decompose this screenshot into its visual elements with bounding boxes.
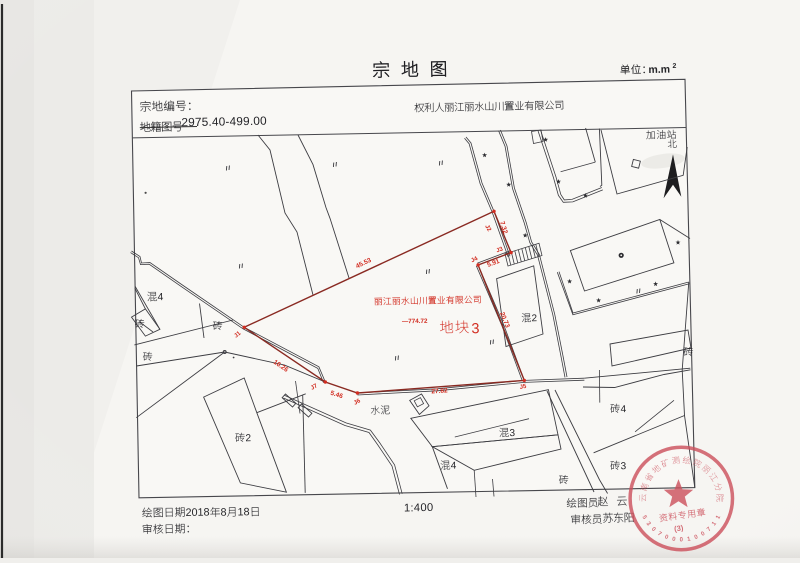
svg-text:4: 4 [158, 292, 164, 303]
svg-text:—774.72: —774.72 [402, 318, 428, 325]
svg-text:4: 4 [620, 404, 626, 415]
svg-text:2: 2 [672, 63, 676, 70]
svg-text:2: 2 [531, 313, 537, 324]
svg-text:2975.40-499.00: 2975.40-499.00 [181, 114, 267, 130]
svg-text:8: 8 [220, 507, 226, 519]
svg-text:3: 3 [509, 428, 515, 439]
svg-text:18: 18 [237, 506, 249, 518]
svg-text:3: 3 [620, 461, 626, 472]
svg-text:m.m: m.m [648, 64, 670, 76]
svg-text:2018: 2018 [185, 506, 209, 519]
svg-text:2: 2 [245, 433, 251, 444]
svg-text:1:400: 1:400 [404, 502, 434, 515]
svg-text:27.82: 27.82 [431, 387, 448, 395]
svg-text:(3): (3) [674, 523, 685, 533]
svg-text:4: 4 [451, 461, 457, 472]
svg-text:3: 3 [471, 321, 479, 337]
